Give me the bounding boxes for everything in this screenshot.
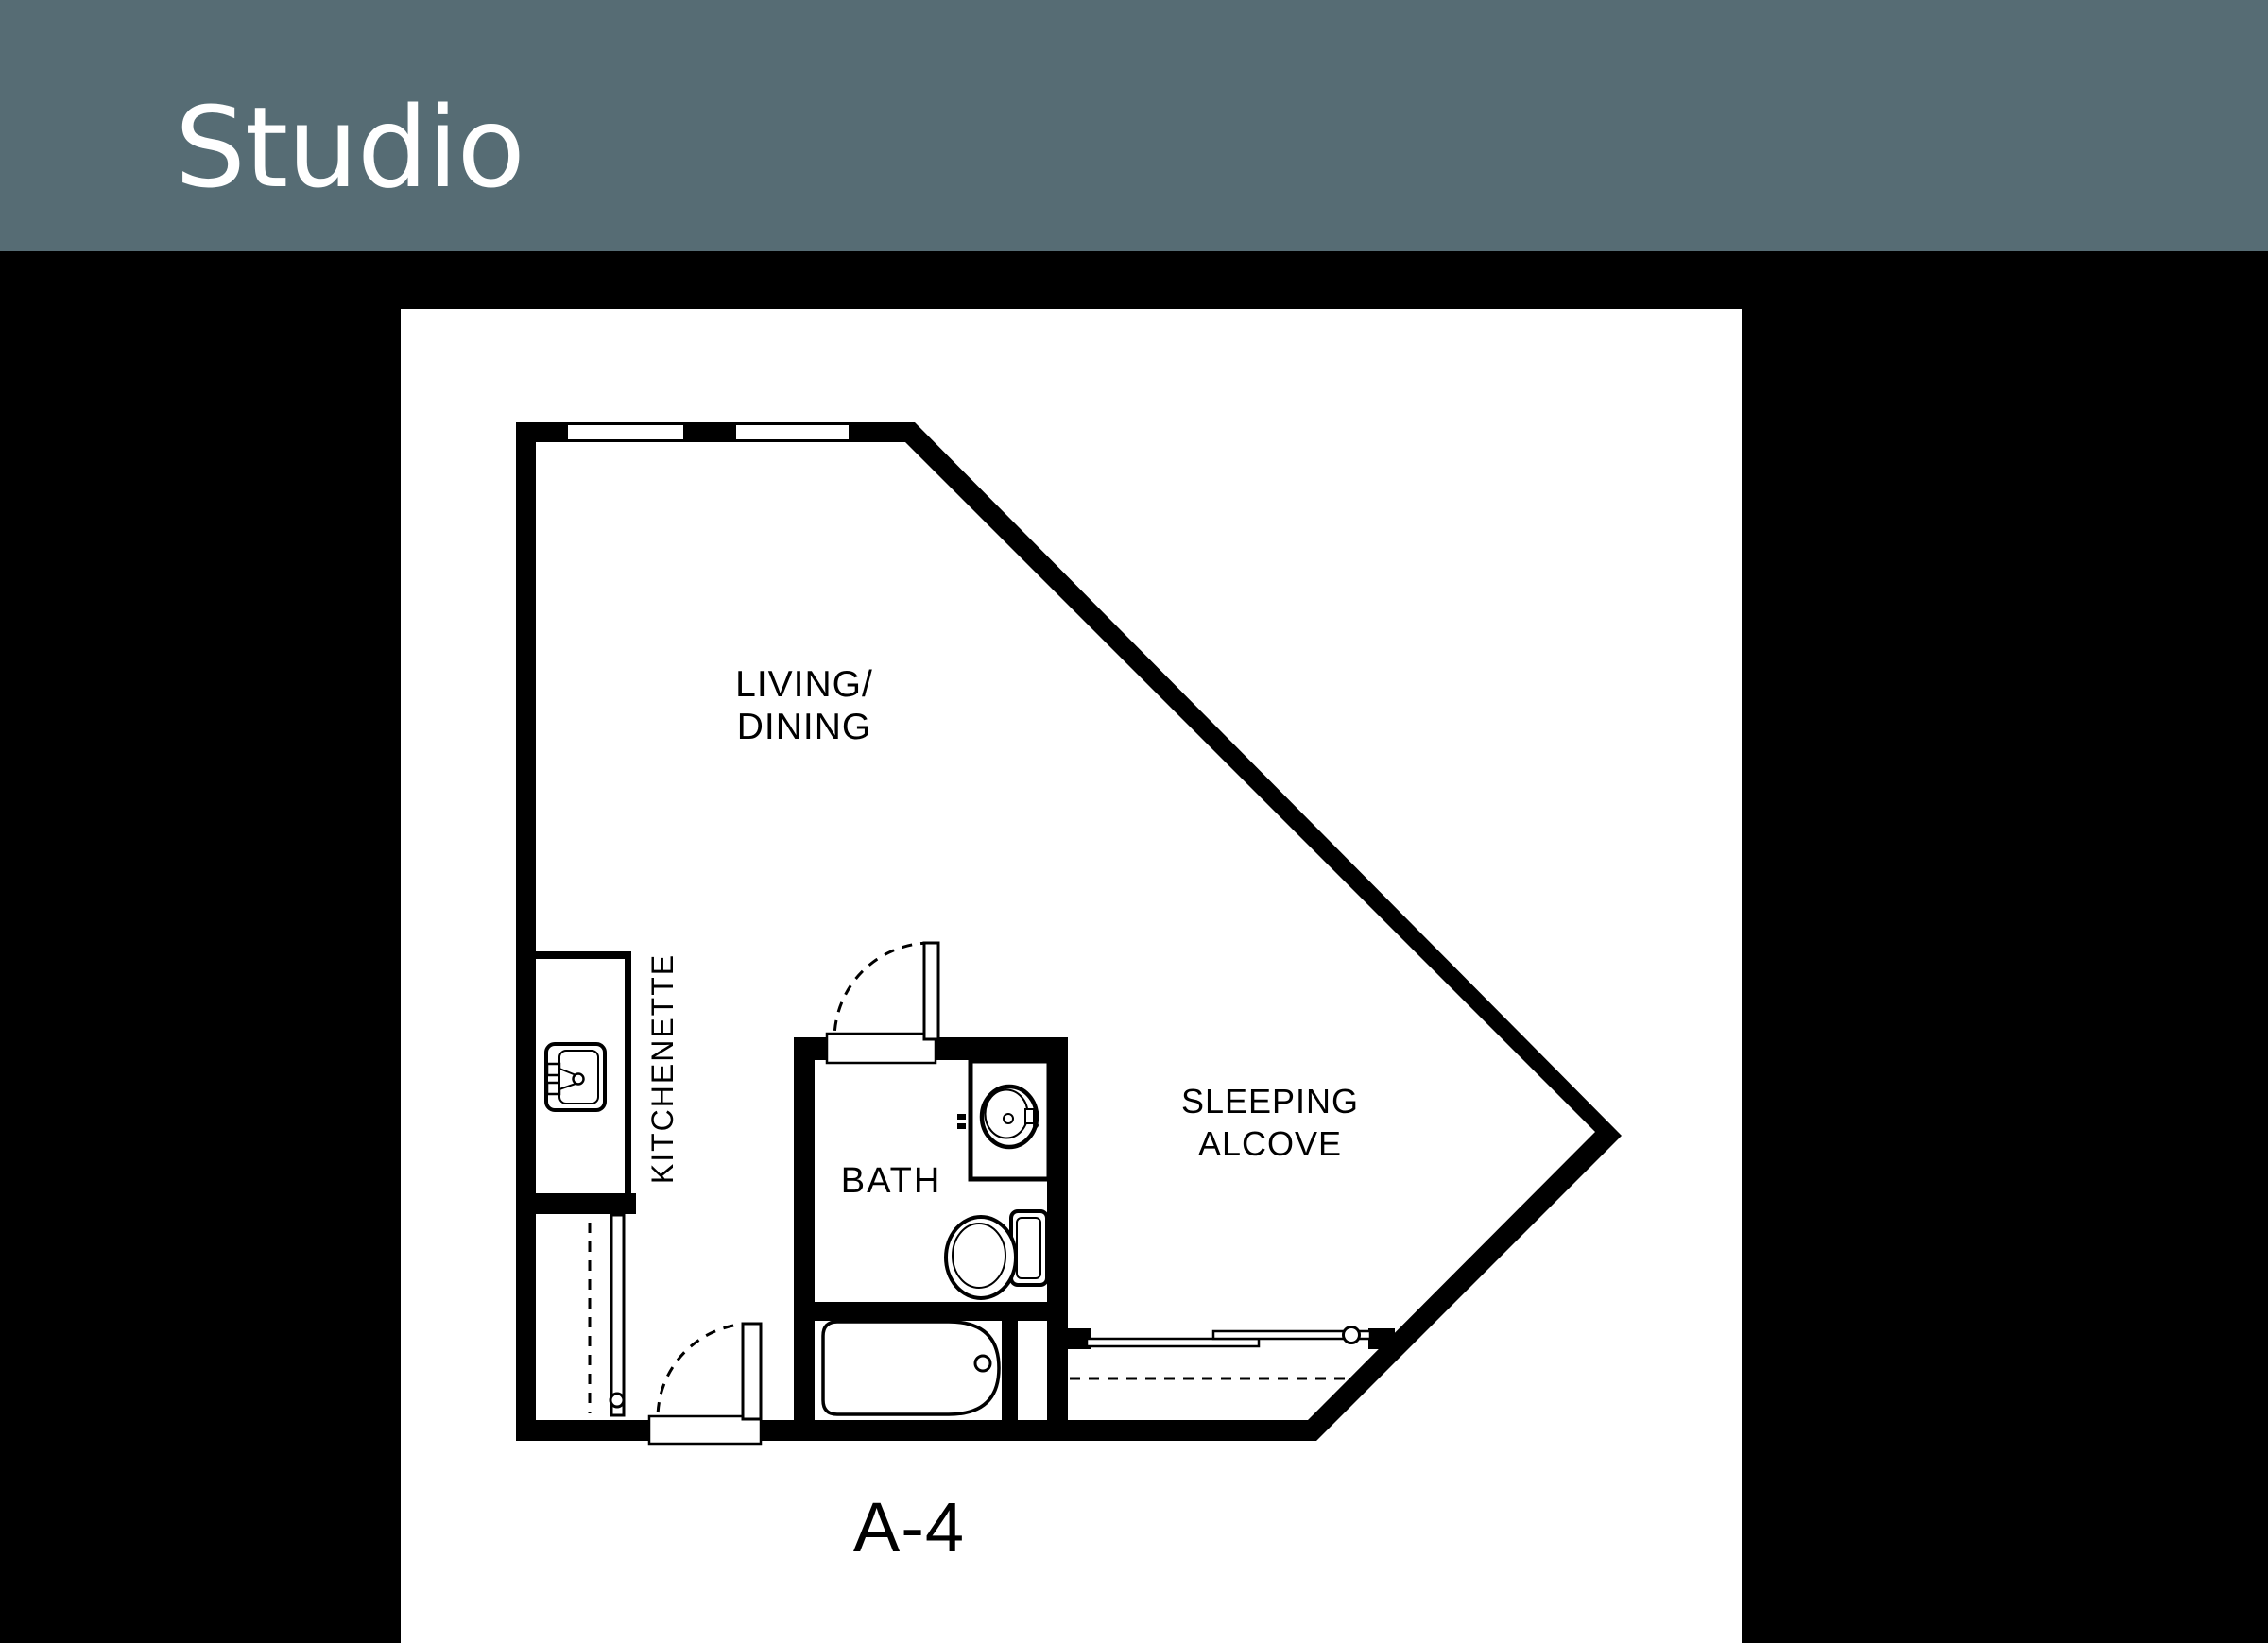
- floorplan-panel: LIVING/ DINING KITCHENETTE BATH SLEEPING…: [401, 309, 1742, 1643]
- toilet: [946, 1211, 1047, 1298]
- page-title: Studio: [175, 92, 524, 203]
- bathtub: [823, 1322, 999, 1414]
- unit-label: A-4: [853, 1488, 965, 1566]
- kitchenette-counter: [534, 951, 631, 959]
- page: Studio: [0, 0, 2268, 1643]
- tub-drain: [975, 1356, 990, 1371]
- room-label-alcove-line2: ALCOVE: [1198, 1124, 1342, 1163]
- window-2: [736, 425, 849, 439]
- alcove-door-pull: [1344, 1327, 1360, 1343]
- room-label-living-line2: DINING: [737, 707, 872, 747]
- window-1: [568, 425, 683, 439]
- room-label-living-line1: LIVING/: [735, 664, 873, 705]
- closet-door-pull: [610, 1394, 624, 1407]
- room-label-kitchenette: KITCHENETTE: [645, 953, 679, 1184]
- room-label-bath: BATH: [841, 1161, 942, 1201]
- floorplan: LIVING/ DINING KITCHENETTE BATH SLEEPING…: [401, 309, 1742, 1643]
- bath-vanity-sink: [957, 1061, 1049, 1179]
- closet-sliding-door: [611, 1215, 624, 1415]
- title-bar: Studio: [0, 0, 2268, 251]
- room-label-alcove-line1: SLEEPING: [1181, 1082, 1359, 1121]
- kitchenette-sink: [546, 1044, 605, 1110]
